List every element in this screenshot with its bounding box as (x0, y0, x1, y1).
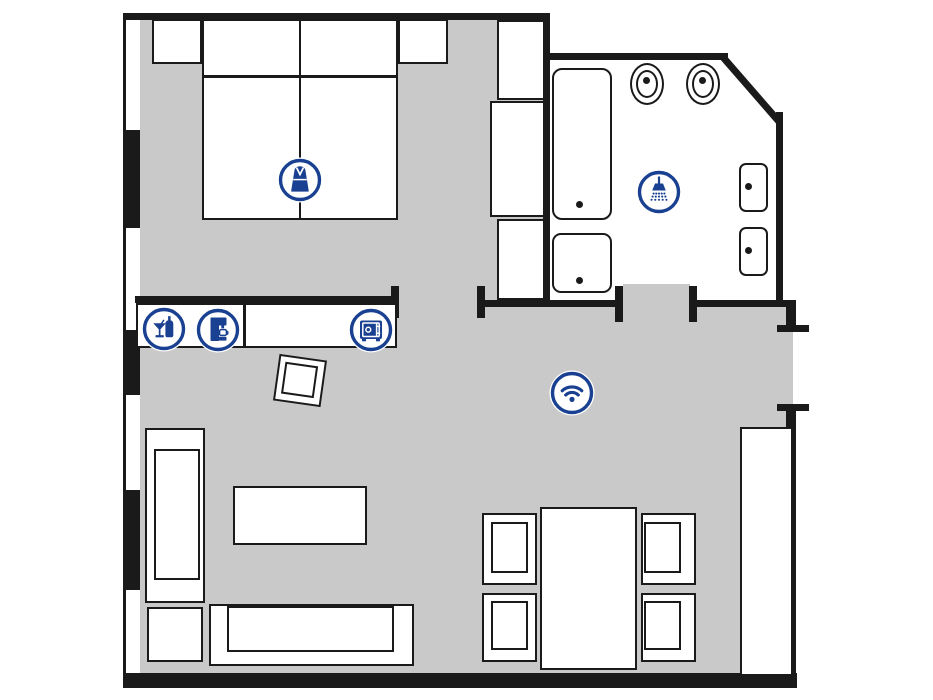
bathroom-wall-bottom-left (479, 300, 620, 307)
wall-left-pier-1 (126, 130, 140, 228)
toilet-flush (745, 183, 752, 190)
safe-icon (348, 307, 394, 353)
dining-chair-3 (641, 513, 696, 585)
shower-icon (636, 169, 682, 215)
bathroom-wall-bottom-right (693, 300, 793, 307)
washbasin-2-bowl (692, 70, 714, 98)
nightstand-left (152, 19, 202, 64)
tilted-stool (273, 354, 327, 407)
bathroom-wall-right (776, 112, 783, 303)
tilted-stool-inner (281, 362, 318, 398)
coffee-table (233, 486, 367, 545)
wardrobe (740, 427, 793, 676)
dining-chair-4 (641, 593, 696, 662)
entrance-door-jamb-top (777, 325, 809, 332)
dining-chair-1 (482, 513, 537, 585)
shower-tray (552, 233, 612, 293)
shower-drain (576, 277, 583, 284)
nightstand-right (398, 19, 448, 64)
bathroom-door-opening-floor (623, 284, 690, 307)
armchair-left-cushion (154, 449, 200, 580)
coffee-machine-icon (195, 307, 241, 353)
wall-bottom (123, 673, 797, 688)
window-4 (126, 590, 140, 677)
bathtub (552, 68, 612, 220)
washbasin-2-drain (699, 77, 706, 84)
dining-table (540, 507, 637, 670)
sofa (209, 604, 414, 666)
closet-top (497, 20, 545, 100)
chair-seat (644, 522, 681, 573)
minibar-icon (141, 306, 187, 352)
bidet-drain (745, 247, 752, 254)
side-table (147, 607, 203, 662)
bathrobe-icon (277, 157, 323, 203)
dining-chair-2 (482, 593, 537, 662)
bathroom-door-jamb-3 (689, 286, 697, 322)
chair-seat (644, 601, 681, 650)
washbasin-1-bowl (636, 70, 658, 98)
entrance-door-jamb-bottom (777, 404, 809, 411)
chair-seat (491, 522, 528, 573)
chair-seat (491, 601, 528, 650)
closet-bottom (497, 219, 545, 300)
armchair-left (145, 428, 205, 603)
bidet (739, 227, 768, 276)
bathroom-wall-diagonal (719, 53, 782, 124)
floor-plan (0, 0, 933, 700)
window-3 (126, 395, 140, 490)
sideboard-divider (243, 305, 246, 346)
wall-left-pier-3 (126, 490, 140, 590)
partition-wall (135, 296, 397, 303)
sofa-cushion (227, 606, 394, 652)
washbasin-1-drain (643, 77, 650, 84)
bathroom-door-jamb-2 (615, 286, 623, 322)
closet-middle (490, 101, 545, 217)
bathroom-door-jamb-1 (477, 286, 485, 318)
wifi-icon (549, 370, 595, 416)
bathtub-drain (576, 201, 583, 208)
bathroom-wall-top (543, 53, 728, 60)
toilet (739, 163, 768, 212)
window-1 (126, 20, 140, 130)
